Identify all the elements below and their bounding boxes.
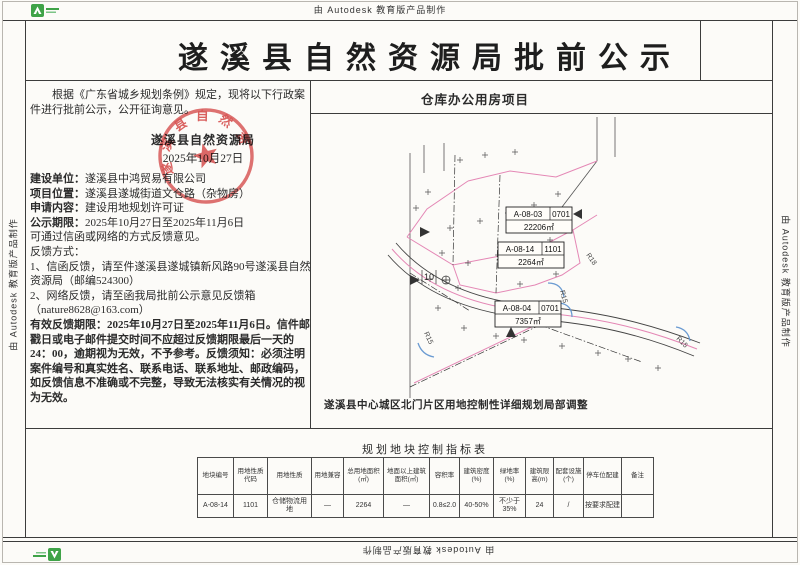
- radius-label: R15: [422, 331, 434, 346]
- table-title: 规划地块控制指标表: [197, 441, 653, 457]
- cell: 0.8≤2.0: [430, 495, 460, 518]
- feedback-line: 反馈方式：: [30, 245, 311, 260]
- notice-fields: 建设单位：遂溪县中鸿贸易有限公司 项目位置：遂溪县遂城街道文仓路（杂物房） 申请…: [30, 172, 311, 406]
- cell: 2264: [344, 495, 384, 518]
- title-underline: [25, 80, 772, 81]
- scan-edge-line: [2, 1, 798, 2]
- col-header: 备注: [622, 458, 654, 495]
- table-header-row: 地块编号 用地性质代码 用地性质 用地兼容 总用地面积(㎡) 地面以上建筑面积(…: [198, 458, 654, 495]
- scan-edge-line: [797, 1, 798, 563]
- parcel-code: A-08-04: [503, 304, 532, 313]
- cell: 1101: [234, 495, 268, 518]
- radius-label: R18: [584, 252, 597, 267]
- col-header: 配套设施(个): [554, 458, 584, 495]
- site-plan-map: 10 R18 R15 R15 R15 A-08-03 0701 22206㎡ A…: [310, 115, 770, 398]
- autodesk-logo-icon: [31, 547, 61, 562]
- cell: 24: [526, 495, 554, 518]
- project-title: 仓库办公用房项目: [310, 89, 640, 108]
- control-indicators-table: 地块编号 用地性质代码 用地性质 用地兼容 总用地面积(㎡) 地面以上建筑面积(…: [197, 457, 654, 518]
- feedback-line: 1、信函反馈，请至件遂溪县遂城镇新风路90号遂溪县自然资源局（邮编524300）: [30, 260, 311, 289]
- cell: 40-50%: [460, 495, 494, 518]
- field-line: 建设单位：遂溪县中鸿贸易有限公司: [30, 172, 311, 187]
- plan-caption: 遂溪县中心城区北门片区用地控制性详细规划局部调整: [324, 397, 588, 412]
- parcel-area: 7357㎡: [515, 317, 541, 326]
- table-value-row: A-08-14 1101 仓储物流用地 — 2264 — 0.8≤2.0 40-…: [198, 495, 654, 518]
- parcel-area: 2264㎡: [518, 258, 544, 267]
- col-header: 总用地面积(㎡): [344, 458, 384, 495]
- cell: [622, 495, 654, 518]
- cell: 不少于35%: [494, 495, 526, 518]
- parcel-code: A-08-03: [514, 210, 543, 219]
- seal-ring-text: 遂溪县自然资源局: [146, 96, 255, 178]
- parcel-subcode: 0701: [541, 304, 559, 313]
- parcel-label: A-08-03 0701 22206㎡: [506, 207, 572, 233]
- svg-text:遂溪县自然资源局: 遂溪县自然资源局: [146, 96, 255, 178]
- cell: 仓储物流用地: [268, 495, 312, 518]
- col-header: 建筑密度(%): [460, 458, 494, 495]
- col-header: 地面以上建筑面积(㎡): [384, 458, 430, 495]
- field-line: 项目位置：遂溪县遂城街道文仓路（杂物房）: [30, 187, 311, 202]
- autodesk-watermark-left: 由 Autodesk 教育版产品制作: [7, 205, 20, 365]
- dimension-text: 10: [424, 272, 434, 282]
- cell: A-08-14: [198, 495, 234, 518]
- col-header: 用地性质代码: [234, 458, 268, 495]
- field-line: 公示期限：2025年10月27日至2025年11月6日: [30, 216, 311, 231]
- parcel-code: A-08-14: [506, 245, 535, 254]
- seal-star-icon: [191, 140, 221, 169]
- parcel-label: A-08-04 0701 7357㎡: [495, 301, 561, 327]
- dimension-label: 10: [422, 270, 450, 284]
- autodesk-watermark-right: 由 Autodesk 教育版产品制作: [780, 202, 793, 362]
- frame-line-bottom-2: [3, 541, 797, 542]
- field-line: 申请内容：建设用地规划许可证: [30, 201, 311, 216]
- cell: —: [312, 495, 344, 518]
- col-header: 容积率: [430, 458, 460, 495]
- section-divider: [25, 428, 772, 429]
- frame-line-bottom: [3, 537, 797, 538]
- frame-line-right: [772, 20, 773, 538]
- page-title: 遂溪县自然资源局批前公示: [90, 33, 770, 77]
- col-header: 用地兼容: [312, 458, 344, 495]
- col-header: 地块编号: [198, 458, 234, 495]
- frame-line-top: [3, 20, 797, 21]
- autodesk-watermark-bottom: 由 Autodesk 教育版产品制作: [328, 544, 528, 557]
- frame-line-left: [25, 20, 26, 538]
- col-header: 停车位配建: [584, 458, 622, 495]
- cell: —: [384, 495, 430, 518]
- deadline-note: 有效反馈期限：2025年10月27日至2025年11月6日。信件邮戳日或电子邮件…: [30, 318, 311, 406]
- project-title-underline: [310, 113, 772, 114]
- parcel-subcode: 0701: [552, 210, 570, 219]
- col-header: 绿地率(%): [494, 458, 526, 495]
- scanned-notice-sheet: 由 Autodesk 教育版产品制作 由 Autodesk 教育版产品制作 由 …: [0, 0, 800, 565]
- feedback-line: 可通过信函或网络的方式反馈意见。: [30, 230, 311, 245]
- parcel-boundaries: [392, 161, 697, 383]
- autodesk-logo-icon: [31, 3, 61, 18]
- scan-edge-line: [2, 1, 3, 563]
- survey-lines: [410, 155, 642, 387]
- scan-edge-line: [2, 562, 798, 563]
- parcel-subcode: 1101: [544, 245, 562, 254]
- cell: 按要求配建: [584, 495, 622, 518]
- feedback-line: 2、网络反馈，请至函我局批前公示意见反馈箱（nature8628@163.com…: [30, 289, 311, 318]
- col-header: 用地性质: [268, 458, 312, 495]
- cell: /: [554, 495, 584, 518]
- col-header: 建筑限高(m): [526, 458, 554, 495]
- parcel-area: 22206㎡: [524, 223, 554, 232]
- autodesk-watermark-top: 由 Autodesk 教育版产品制作: [280, 3, 480, 16]
- parcel-label: A-08-14 1101 2264㎡: [498, 242, 564, 268]
